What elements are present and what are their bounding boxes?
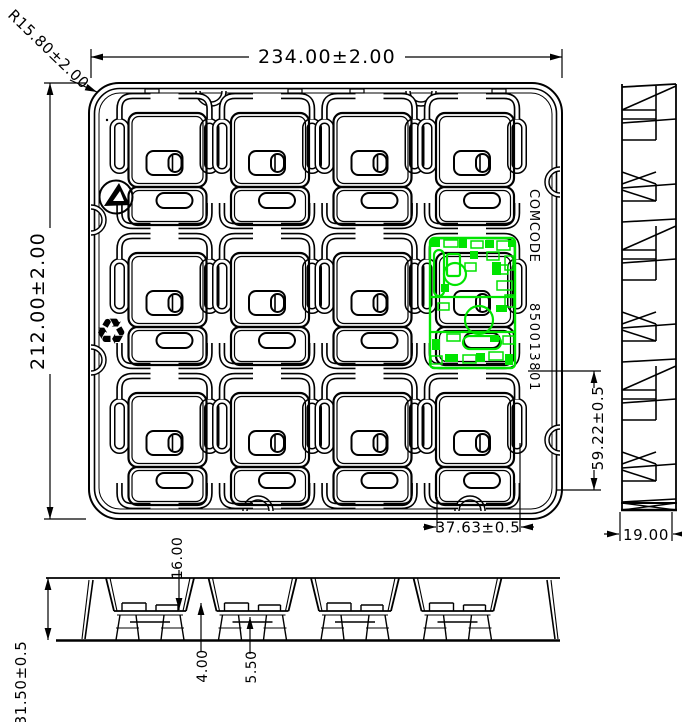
top-view [89,83,562,519]
front-view [46,578,560,641]
side-profile-row [622,366,676,502]
dim-step-b: 5.50 [244,650,260,683]
front-pocket [209,578,297,640]
dimensions [44,49,682,654]
pocket [113,376,217,506]
pocket [113,236,217,366]
dim-pcb-vertical: 59.22±0.5 [589,386,607,471]
pocket [215,236,319,366]
comcode-label: COMCODE [526,189,541,263]
recycle-icon: ♻ [95,312,127,353]
front-pocket [311,578,399,640]
side-profile-row [622,226,676,362]
pocket [318,96,422,226]
pocket [420,96,524,226]
dim-corner-radius: R15.80±2.00 [4,6,93,93]
dim-overall-height: 212.00±2.00 [27,232,49,370]
drawing-canvas: ♻ [0,0,682,722]
dim-overall-width: 234.00±2.00 [258,46,396,68]
pocket [420,376,524,506]
dim-side-width: 19.00 [623,526,669,544]
side-view [621,84,677,510]
pocket [318,376,422,506]
pocket [215,376,319,506]
front-pocket [106,578,194,640]
comcode-number: 850013801 [526,303,541,392]
dim-overall-depth: 31.50±0.5 [12,641,30,722]
dim-pcb-horizontal: 37.63±0.5 [436,519,521,537]
side-profile-row [622,86,676,222]
dim-step-a: 4.00 [195,649,211,682]
reference-dot [106,119,108,121]
front-pocket [414,578,502,640]
dim-pocket-depth: 16.00 [170,537,186,580]
pocket [318,236,422,366]
pocket [215,96,319,226]
pocket [113,96,217,226]
